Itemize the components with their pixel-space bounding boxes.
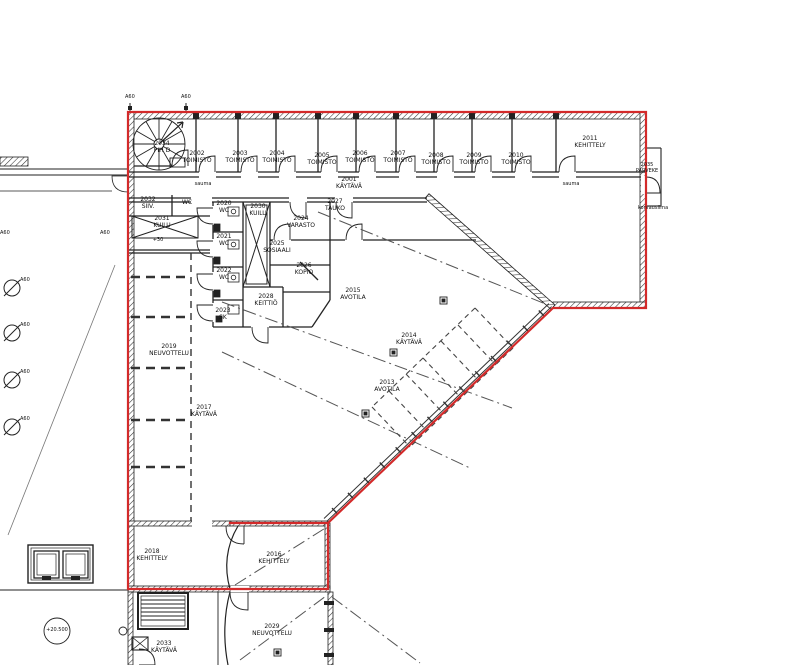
a60-ticks: [128, 103, 188, 112]
zone-boundaries: [222, 212, 548, 663]
shaft-kuilu-2031: [132, 216, 198, 238]
wc-fixtures: [214, 207, 239, 322]
dashed-ramp: [372, 308, 513, 447]
diagonal-facade-lower: [323, 302, 553, 523]
plan-linework: [0, 0, 800, 665]
red-boundary: [128, 112, 646, 589]
site-columns: [4, 280, 20, 435]
spiral-stair: [133, 118, 185, 170]
exterior-walls: [128, 112, 646, 665]
elevation-mark: [44, 618, 127, 644]
elevators: [28, 545, 93, 583]
movable-partitions: [131, 253, 191, 521]
diagonal-facade-upper: [425, 194, 555, 310]
junction-boxes: [274, 297, 447, 656]
stair-2033: [132, 593, 188, 650]
floor-plan: 2034 PIH D 2002 TOIMISTO 2003 TOIMISTO 2…: [0, 0, 800, 665]
shaft-kuilu-2030: [243, 202, 270, 287]
